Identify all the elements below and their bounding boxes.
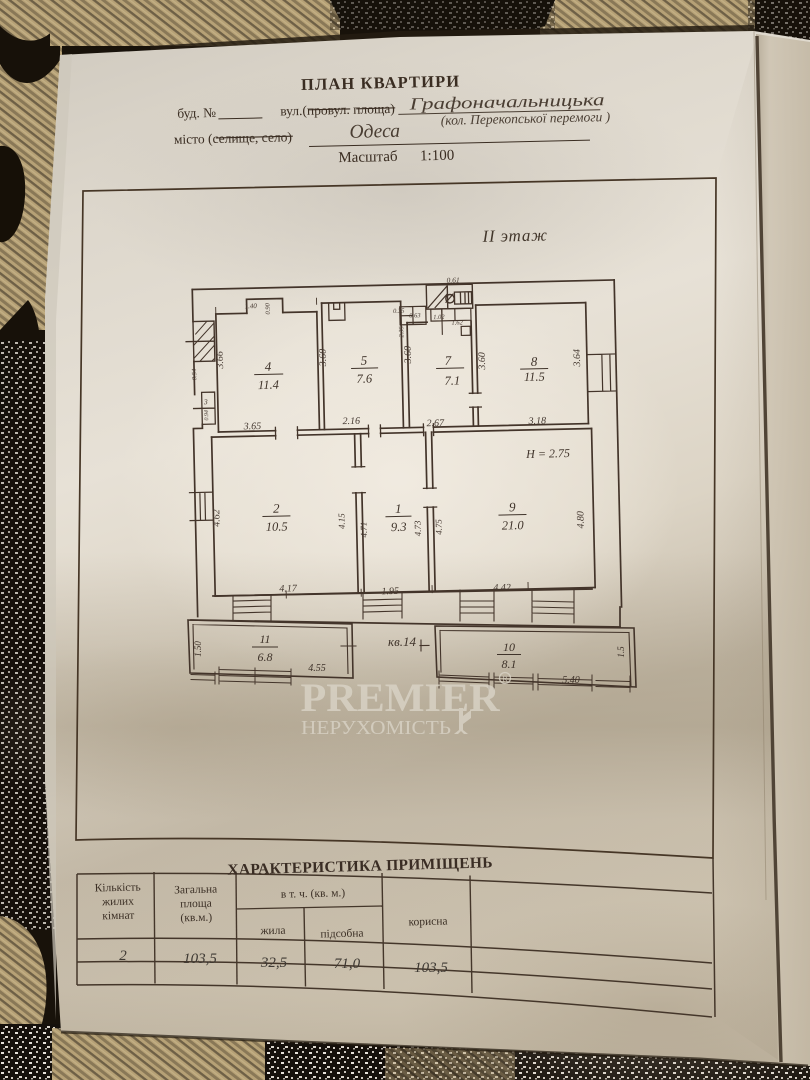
svg-text:4.71: 4.71 bbox=[359, 522, 369, 538]
svg-text:11: 11 bbox=[259, 632, 270, 646]
svg-text:103,5: 103,5 bbox=[183, 951, 217, 967]
svg-text:Одеса: Одеса bbox=[349, 121, 400, 143]
svg-text:жилих: жилих bbox=[101, 896, 134, 909]
svg-text:4.42: 4.42 bbox=[493, 582, 511, 593]
svg-text:0.54: 0.54 bbox=[191, 368, 198, 380]
svg-text:4.73: 4.73 bbox=[413, 520, 423, 536]
svg-text:2.35: 2.35 bbox=[398, 325, 405, 337]
svg-text:0.61: 0.61 bbox=[446, 275, 459, 284]
svg-text:1.02: 1.02 bbox=[433, 314, 445, 321]
svg-text:11.5: 11.5 bbox=[524, 370, 545, 384]
svg-text:R: R bbox=[502, 675, 508, 684]
svg-text:4.17: 4.17 bbox=[279, 583, 298, 594]
svg-text:Масштаб 1:100: Масштаб 1:100 bbox=[338, 148, 454, 167]
svg-text:корисна: корисна bbox=[408, 915, 447, 928]
svg-text:5: 5 bbox=[360, 353, 367, 368]
svg-text:4: 4 bbox=[265, 359, 272, 374]
svg-text:2: 2 bbox=[273, 501, 280, 516]
svg-text:6.8: 6.8 bbox=[258, 650, 273, 664]
svg-text:2.67: 2.67 bbox=[426, 418, 445, 429]
svg-text:1.5: 1.5 bbox=[616, 646, 626, 658]
svg-text:0.94: 0.94 bbox=[203, 410, 210, 421]
svg-text:4.62: 4.62 bbox=[211, 509, 222, 527]
svg-text:0.90: 0.90 bbox=[265, 302, 272, 314]
svg-text:в т. ч. (кв. м.): в т. ч. (кв. м.) bbox=[281, 887, 346, 900]
svg-text:кімнат: кімнат bbox=[102, 910, 134, 923]
svg-text:ПЛАН КВАРТИРИ: ПЛАН КВАРТИРИ bbox=[301, 71, 461, 94]
svg-text:3.66: 3.66 bbox=[215, 351, 226, 370]
svg-text:1.62: 1.62 bbox=[451, 319, 463, 326]
svg-text:8: 8 bbox=[531, 354, 538, 369]
svg-text:10.5: 10.5 bbox=[266, 519, 288, 533]
svg-text:площа: площа bbox=[180, 898, 212, 911]
svg-text:7: 7 bbox=[445, 353, 452, 368]
svg-text:3.64: 3.64 bbox=[572, 349, 583, 368]
svg-text:Загальна: Загальна bbox=[174, 884, 217, 897]
svg-text:11.4: 11.4 bbox=[258, 378, 279, 392]
svg-text:4.55: 4.55 bbox=[308, 663, 326, 674]
svg-text:7.1: 7.1 bbox=[444, 373, 460, 387]
svg-text:8.1: 8.1 bbox=[502, 657, 517, 671]
svg-text:4.75: 4.75 bbox=[434, 519, 444, 535]
svg-text:3.60: 3.60 bbox=[318, 349, 329, 368]
svg-text:буд. №: буд. № bbox=[177, 105, 216, 121]
svg-text:4.80: 4.80 bbox=[575, 511, 586, 529]
svg-text:кв.14: кв.14 bbox=[388, 634, 416, 649]
svg-text:3.60: 3.60 bbox=[477, 352, 488, 371]
svg-text:1: 1 bbox=[395, 501, 402, 516]
svg-text:2.16: 2.16 bbox=[342, 416, 360, 427]
svg-text:0.63: 0.63 bbox=[409, 312, 421, 319]
svg-text:3.18: 3.18 bbox=[527, 416, 546, 427]
svg-text:5.40: 5.40 bbox=[562, 675, 580, 686]
svg-text:1.40: 1.40 bbox=[244, 302, 257, 310]
svg-text:0.35: 0.35 bbox=[393, 308, 405, 315]
svg-text:НЕРУХОМІСТЬ: НЕРУХОМІСТЬ bbox=[301, 717, 451, 739]
svg-text:3.65: 3.65 bbox=[243, 421, 262, 432]
svg-text:підсобна: підсобна bbox=[320, 928, 363, 941]
svg-text:7.6: 7.6 bbox=[356, 371, 373, 385]
svg-text:Кількість: Кількість bbox=[95, 881, 141, 894]
svg-text:71,0: 71,0 bbox=[334, 956, 361, 972]
svg-text:жила: жила bbox=[259, 925, 285, 938]
svg-text:2: 2 bbox=[119, 948, 127, 964]
svg-text:3: 3 bbox=[203, 397, 208, 406]
svg-text:3.60: 3.60 bbox=[403, 346, 414, 365]
svg-text:1.95: 1.95 bbox=[381, 586, 399, 597]
svg-text:Н = 2.75: Н = 2.75 bbox=[525, 446, 570, 461]
svg-text:9.3: 9.3 bbox=[391, 520, 407, 534]
svg-text:4.15: 4.15 bbox=[336, 513, 346, 529]
svg-text:9: 9 bbox=[509, 499, 516, 514]
svg-text:21.0: 21.0 bbox=[502, 518, 525, 533]
svg-text:1.50: 1.50 bbox=[193, 641, 203, 657]
svg-text:32,5: 32,5 bbox=[260, 955, 288, 971]
svg-text:(кв.м.): (кв.м.) bbox=[180, 912, 212, 925]
svg-text:10: 10 bbox=[503, 640, 515, 654]
svg-text:ІІ этаж: ІІ этаж bbox=[481, 225, 548, 245]
svg-text:103,5: 103,5 bbox=[414, 960, 448, 976]
